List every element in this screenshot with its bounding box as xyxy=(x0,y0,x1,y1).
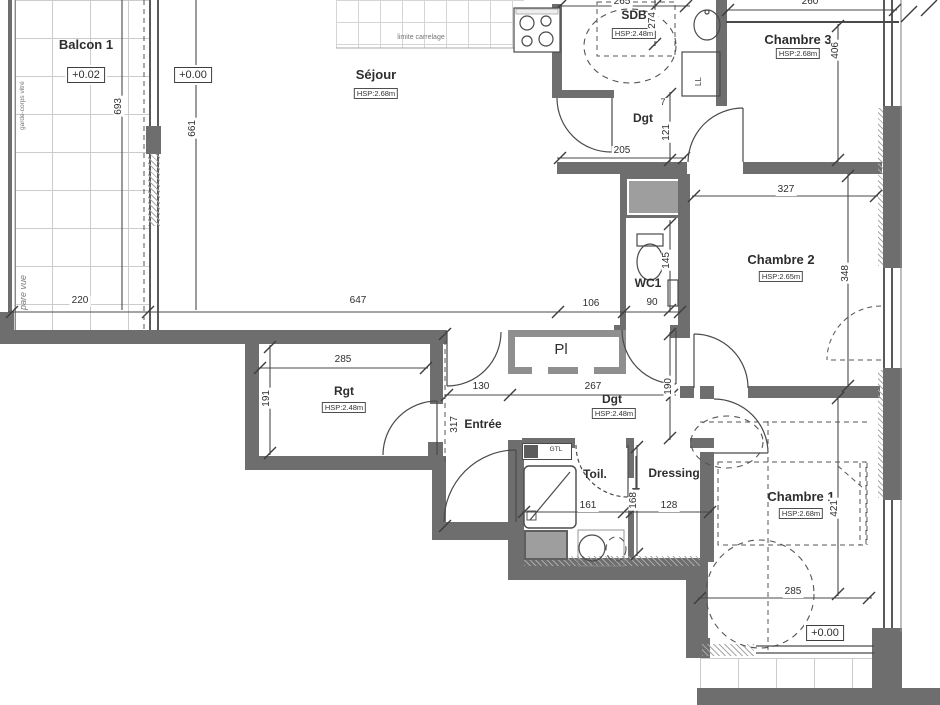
room-label-toil: Toil. xyxy=(583,468,607,480)
dim-ch3-h: 406 xyxy=(831,40,842,61)
wall xyxy=(872,628,902,688)
wall xyxy=(245,330,259,470)
room-label-chambre3: Chambre 3 xyxy=(764,33,831,46)
wall xyxy=(626,438,634,448)
hsp-rgt: HSP:2.48m xyxy=(322,402,366,413)
room-label-entree: Entrée xyxy=(464,418,501,430)
wall xyxy=(628,510,634,558)
dim-entree-w: 130 xyxy=(471,382,492,393)
wall xyxy=(146,126,161,154)
wall xyxy=(748,386,880,398)
shaft-fill xyxy=(627,179,683,215)
room-label-sdb: SDB xyxy=(621,9,646,21)
room-label-sejour: Séjour xyxy=(356,68,396,81)
dim-sejour-h: 661 xyxy=(188,118,199,139)
room-label-chambre2: Chambre 2 xyxy=(747,253,814,266)
label-gtl: GTL xyxy=(550,446,563,453)
floor-plan: Balcon 1 +0.02 +0.00 garde-corps vitré p… xyxy=(0,0,940,705)
dim-dgt1-step: 7 xyxy=(658,98,667,107)
dim-dgt1-h: 121 xyxy=(662,122,673,143)
dim-ch1-w: 285 xyxy=(783,587,804,598)
note-garde-corps: garde-corps vitré xyxy=(20,52,27,130)
wall xyxy=(628,448,634,478)
dim-dressing-w: 128 xyxy=(659,501,680,512)
dim-dgt1-w: 205 xyxy=(612,146,633,157)
wall xyxy=(690,438,714,448)
window-chambre1 xyxy=(883,500,893,630)
wall-hatch xyxy=(878,108,883,266)
balcony2-tile-grid xyxy=(700,658,874,688)
dim-balcon-h: 693 xyxy=(114,96,125,117)
room-label-dgt-haut: Dgt xyxy=(633,112,653,124)
dim-wc1-h: 145 xyxy=(662,250,673,271)
label-lave-linge: LL xyxy=(695,64,703,86)
hsp-dgt-bas: HSP:2.48m xyxy=(592,408,636,419)
wall xyxy=(0,330,447,344)
dim-balcon-w: 220 xyxy=(70,296,91,307)
hsp-sejour: HSP:2.68m xyxy=(354,88,398,99)
room-label-wc1: WC1 xyxy=(635,277,662,289)
wall xyxy=(680,386,694,398)
wall xyxy=(743,162,882,174)
hsp-chambre2: HSP:2.65m xyxy=(759,271,803,282)
wall xyxy=(552,90,614,98)
dim-ch3-w: 260 xyxy=(800,0,821,8)
level-badge-chambre1: +0.00 xyxy=(806,625,844,641)
window-chambre2 xyxy=(883,268,893,368)
dim-ch2-w: 327 xyxy=(776,185,797,196)
dim-dgt2-h: 190 xyxy=(664,376,675,397)
dim-sdb-w: 265 xyxy=(612,0,633,8)
wall xyxy=(245,456,443,470)
room-label-chambre1: Chambre 1 xyxy=(767,490,834,503)
wall xyxy=(883,106,902,268)
dim-rgt-h: 191 xyxy=(262,388,273,409)
wall xyxy=(670,325,690,338)
note-limite-carrelage: limite carrelage xyxy=(397,34,444,41)
wall xyxy=(15,0,16,332)
closet-door-notch xyxy=(578,366,594,374)
dim-rgt-w: 285 xyxy=(333,355,354,366)
wall xyxy=(700,386,714,399)
dim-sejour-w: 647 xyxy=(348,296,369,307)
room-label-balcon1: Balcon 1 xyxy=(59,38,113,51)
wall-hatch xyxy=(148,154,160,226)
wall xyxy=(620,216,626,328)
wall xyxy=(8,0,12,332)
room-label-rgt: Rgt xyxy=(334,385,354,397)
dim-entree-h: 317 xyxy=(450,414,461,435)
wall xyxy=(678,174,690,328)
wall-hatch xyxy=(878,370,883,498)
dim-dressing-h: 168 xyxy=(629,490,640,511)
sill-hatch xyxy=(702,644,754,656)
dim-wc1-w: 90 xyxy=(644,298,659,309)
wall xyxy=(697,688,940,705)
dim-ch2-h: 348 xyxy=(841,263,852,284)
room-label-dgt-bas: Dgt xyxy=(602,393,622,405)
note-pare-vue: pare vue xyxy=(19,248,28,310)
window-chambre3 xyxy=(883,0,893,106)
dim-toil-w: 161 xyxy=(578,501,599,512)
wall xyxy=(552,4,562,98)
closet-door-notch xyxy=(532,366,548,374)
room-label-placard: Pl xyxy=(554,342,567,357)
level-badge-sejour: +0.00 xyxy=(174,67,212,83)
dim-sdb-h: 274 xyxy=(648,10,659,31)
level-badge-balcon: +0.02 xyxy=(67,67,105,83)
dim-hall-w: 106 xyxy=(581,299,602,310)
gtl-dark-cell xyxy=(524,445,538,458)
wall xyxy=(700,452,714,562)
wall xyxy=(883,368,902,500)
wall xyxy=(716,0,727,106)
hsp-chambre3: HSP:2.68m xyxy=(776,48,820,59)
dim-dgt2-w: 267 xyxy=(583,382,604,393)
wall xyxy=(430,330,443,404)
room-label-dressing: Dressing xyxy=(648,467,699,479)
dim-ch1-h: 421 xyxy=(830,498,841,519)
hsp-chambre1: HSP:2.68m xyxy=(779,508,823,519)
shaft-small xyxy=(524,530,568,560)
